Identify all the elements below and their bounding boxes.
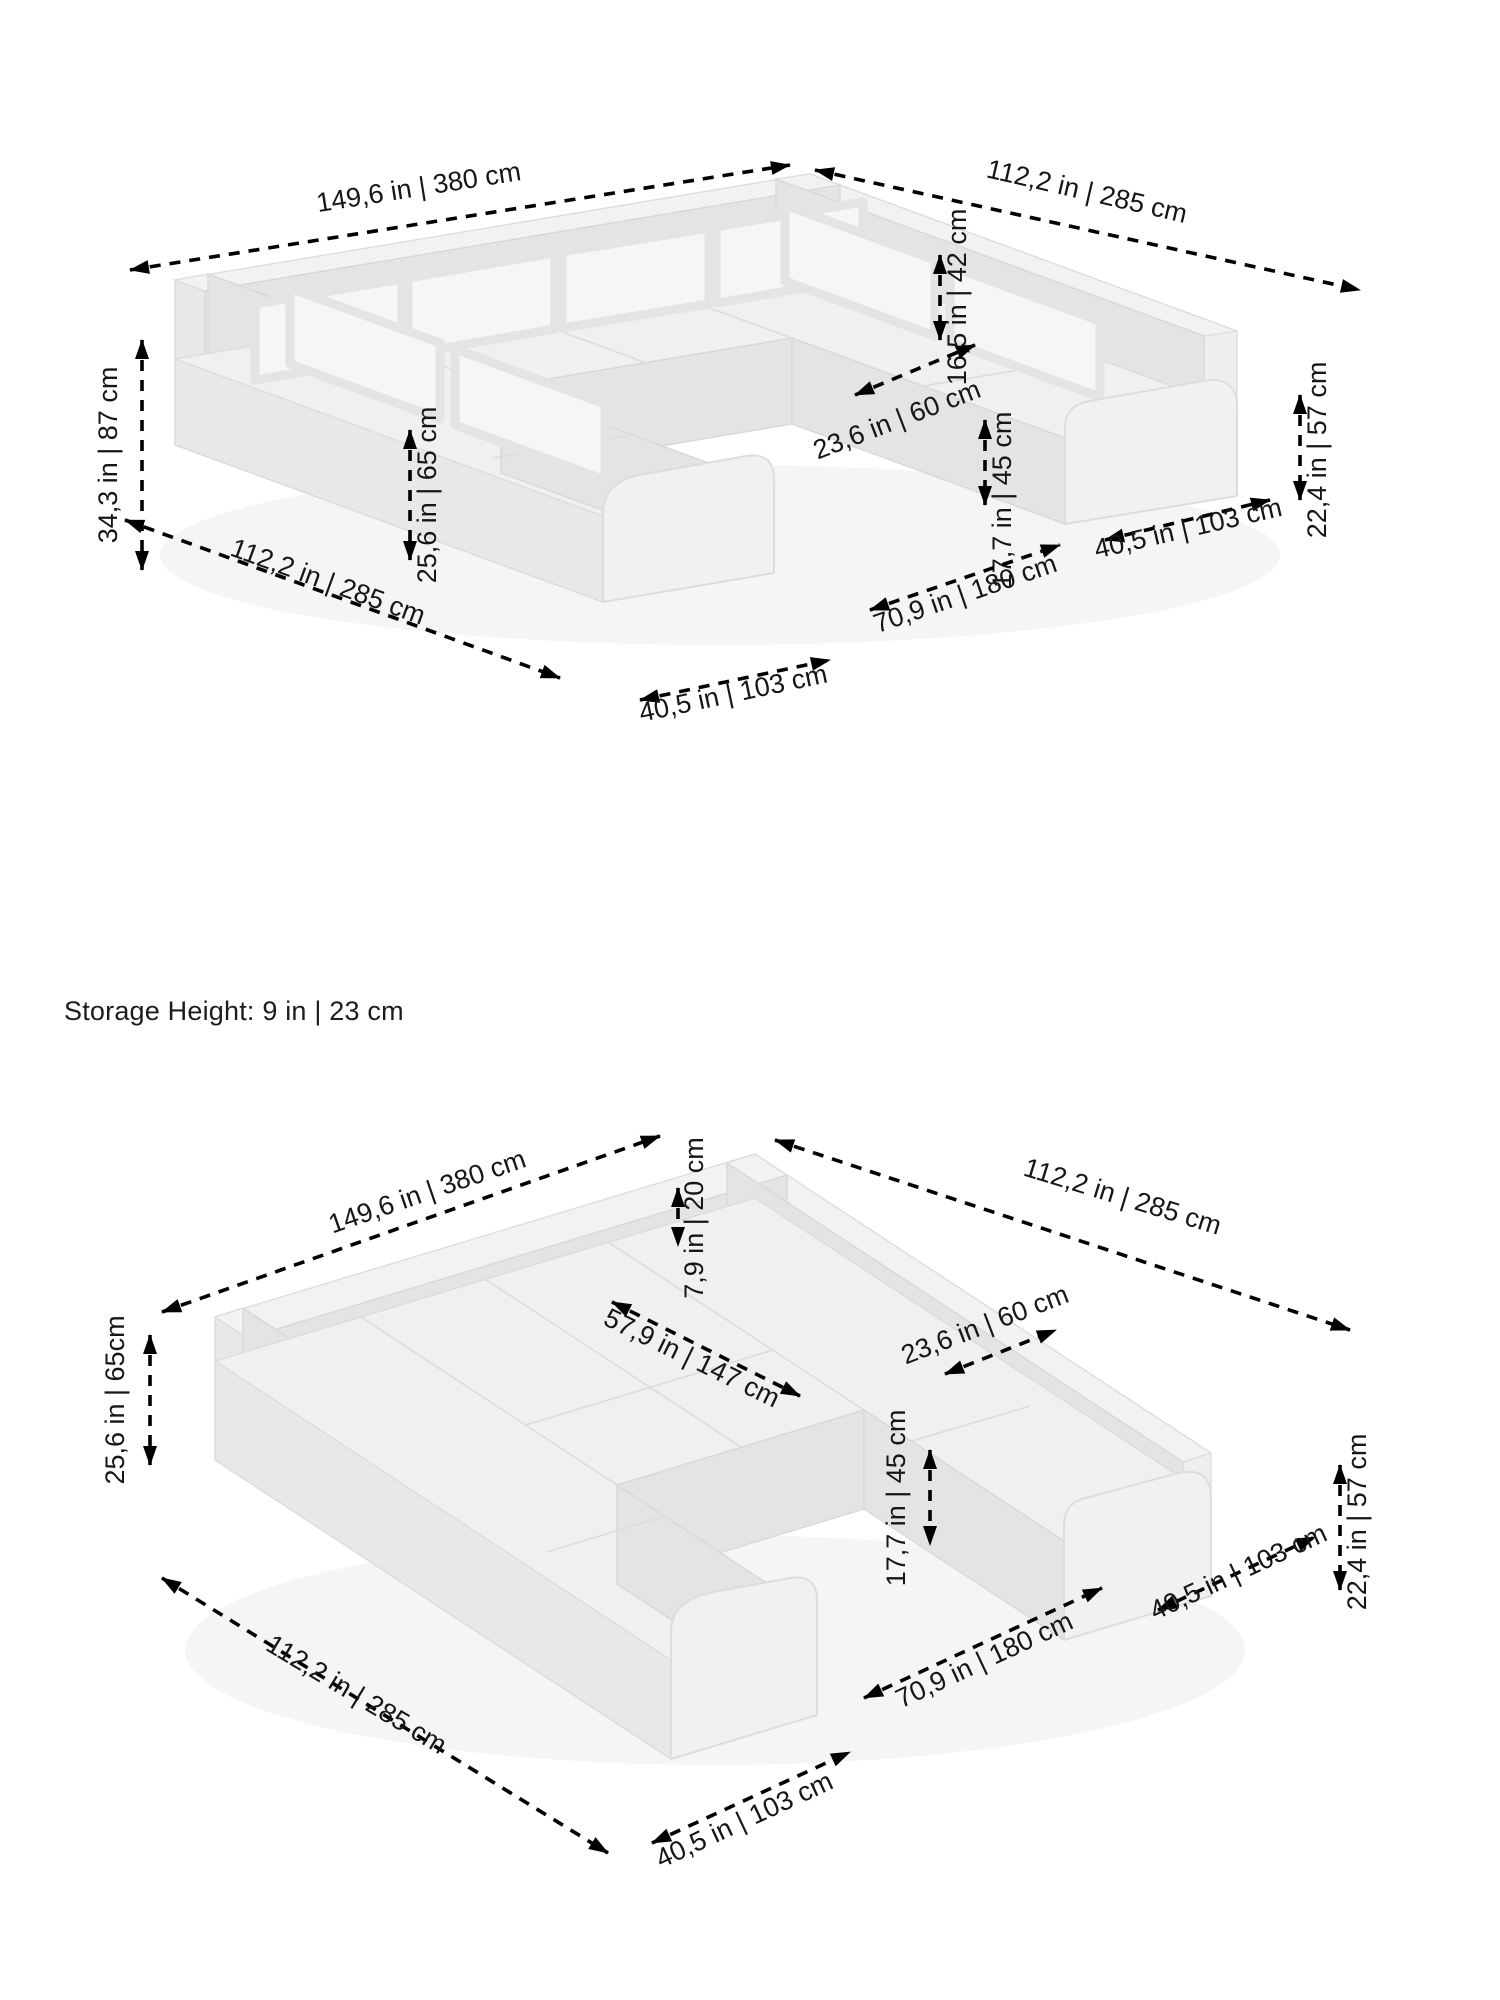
- dim-label-backrest-above-seat: 16,5 in | 42 cm: [942, 209, 972, 386]
- dim-label-right-side-depth: 112,2 in | 285 cm: [984, 154, 1190, 229]
- dim-backrest-above-seat: 16,5 in | 42 cm: [940, 209, 972, 386]
- dim-label-front-module-width: 40,5 in | 103 cm: [651, 1766, 837, 1874]
- bottom-view: 149,6 in | 380 cm 112,2 in | 285 cm 7,9 …: [100, 1136, 1372, 1874]
- storage-height-note: Storage Height: 9 in | 23 cm: [64, 996, 404, 1027]
- dim-label-side-height: 25,6 in | 65cm: [100, 1315, 130, 1484]
- dim-front-module-width: 40,5 in | 103 cm: [651, 1752, 850, 1874]
- dim-label-total-width: 149,6 in | 380 cm: [324, 1144, 529, 1240]
- dim-label-total-height: 34,3 in | 87 cm: [93, 367, 123, 544]
- dim-front-module-width: 40,5 in | 103 cm: [636, 659, 830, 728]
- dim-label-armrest-height: 22,4 in | 57 cm: [1342, 1434, 1372, 1611]
- dim-label-total-width: 149,6 in | 380 cm: [314, 156, 523, 218]
- dim-armrest-height: 22,4 in | 57 cm: [1340, 1434, 1372, 1611]
- dim-side-height: 25,6 in | 65cm: [100, 1315, 150, 1484]
- dim-back-cushion-height: 25,6 in | 65 cm: [410, 407, 442, 584]
- dim-label-back-cushion-height: 25,6 in | 65 cm: [412, 407, 442, 584]
- dim-total-height: 34,3 in | 87 cm: [93, 340, 142, 570]
- dim-label-right-side-depth: 112,2 in | 285 cm: [1020, 1152, 1224, 1241]
- dim-armrest-height: 22,4 in | 57 cm: [1300, 362, 1332, 539]
- dim-label-backrest-height: 7,9 in | 20 cm: [679, 1137, 709, 1299]
- right-armrest: [1065, 380, 1237, 524]
- top-view: 149,6 in | 380 cm 112,2 in | 285 cm 34,3…: [93, 154, 1360, 728]
- dim-label-seat-height: 17,7 in | 45 cm: [881, 1410, 911, 1587]
- dim-backrest-height: 7,9 in | 20 cm: [678, 1137, 709, 1299]
- dim-label-front-module-width: 40,5 in | 103 cm: [636, 659, 830, 728]
- dim-label-armrest-height: 22,4 in | 57 cm: [1302, 362, 1332, 539]
